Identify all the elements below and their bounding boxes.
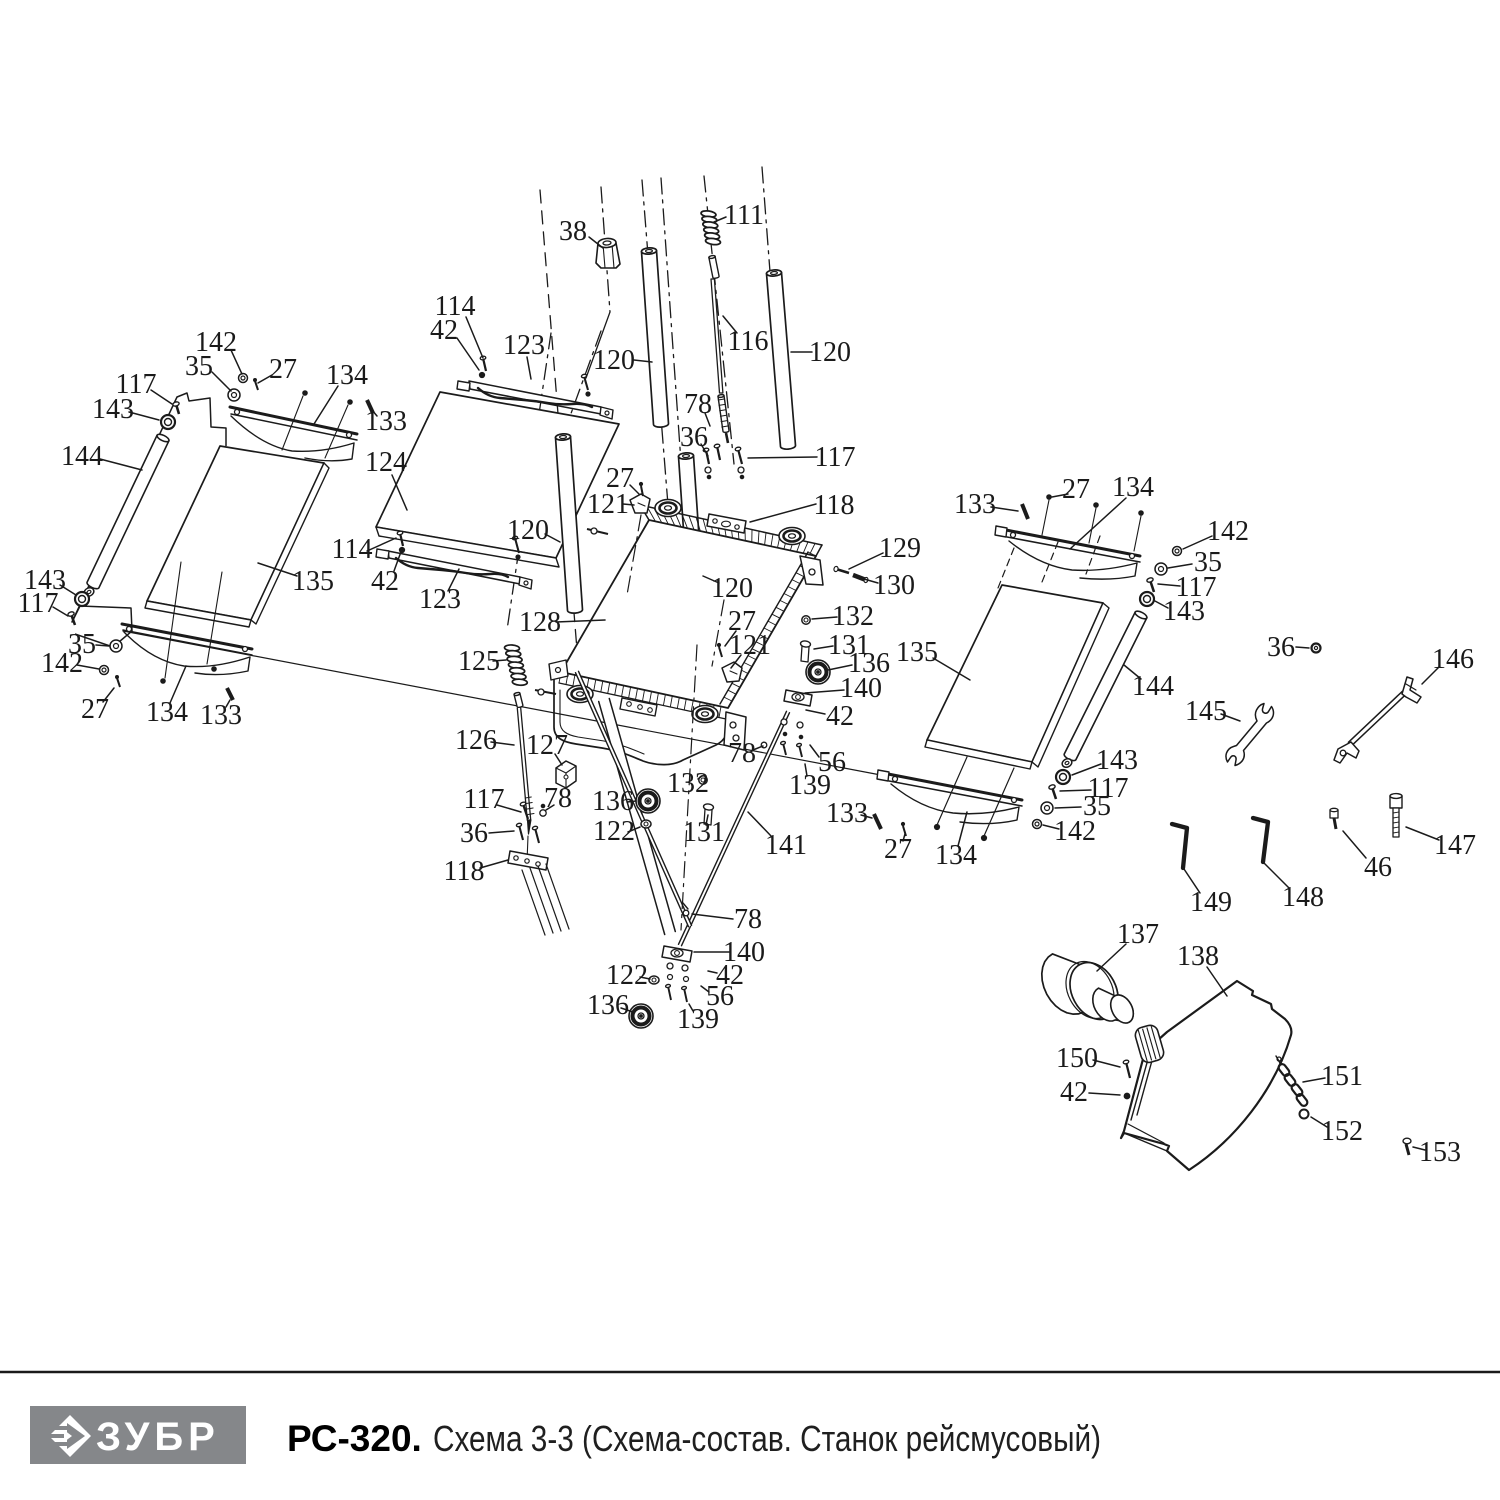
svg-text:122: 122	[606, 960, 648, 991]
svg-text:117: 117	[18, 588, 59, 619]
svg-text:129: 129	[879, 533, 921, 564]
svg-text:42: 42	[430, 315, 458, 346]
svg-text:130: 130	[873, 570, 915, 601]
svg-text:42: 42	[826, 701, 854, 732]
svg-text:151: 151	[1321, 1061, 1363, 1092]
svg-text:135: 135	[292, 566, 334, 597]
svg-text:147: 147	[1434, 830, 1476, 861]
svg-text:140: 140	[840, 673, 882, 704]
svg-text:133: 133	[365, 406, 407, 437]
svg-text:121: 121	[587, 489, 629, 520]
svg-text:78: 78	[684, 389, 712, 420]
svg-text:148: 148	[1282, 882, 1324, 913]
svg-text:133: 133	[200, 700, 242, 731]
svg-text:142: 142	[1207, 516, 1249, 547]
svg-text:117: 117	[815, 442, 856, 473]
svg-text:114: 114	[332, 534, 373, 565]
svg-text:145: 145	[1185, 696, 1227, 727]
svg-text:36: 36	[680, 422, 708, 453]
svg-text:135: 135	[896, 637, 938, 668]
svg-text:111: 111	[724, 200, 764, 231]
svg-text:144: 144	[1132, 671, 1174, 702]
svg-text:146: 146	[1432, 644, 1474, 675]
svg-text:122: 122	[593, 816, 635, 847]
svg-text:131: 131	[683, 817, 725, 848]
svg-text:134: 134	[326, 360, 368, 391]
svg-text:149: 149	[1190, 887, 1232, 918]
svg-text:46: 46	[1364, 852, 1392, 883]
svg-text:121: 121	[729, 630, 771, 661]
svg-text:143: 143	[1163, 596, 1205, 627]
svg-text:153: 153	[1419, 1137, 1461, 1168]
svg-text:118: 118	[444, 856, 485, 887]
svg-text:78: 78	[544, 783, 572, 814]
svg-text:134: 134	[935, 840, 977, 871]
svg-text:133: 133	[826, 798, 868, 829]
svg-text:РС-320.: РС-320.	[287, 1418, 422, 1459]
svg-text:133: 133	[954, 489, 996, 520]
svg-text:138: 138	[1177, 941, 1219, 972]
svg-text:27: 27	[884, 834, 912, 865]
svg-text:124: 124	[365, 447, 407, 478]
svg-text:116: 116	[728, 326, 769, 357]
svg-text:128: 128	[519, 607, 561, 638]
svg-text:35: 35	[185, 351, 213, 382]
svg-text:123: 123	[419, 584, 461, 615]
svg-text:78: 78	[728, 738, 756, 769]
svg-text:ЗУБР: ЗУБР	[96, 1415, 220, 1459]
svg-text:132: 132	[832, 601, 874, 632]
svg-text:144: 144	[61, 441, 103, 472]
svg-text:143: 143	[92, 394, 134, 425]
svg-text:120: 120	[809, 337, 851, 368]
svg-text:136: 136	[587, 990, 629, 1021]
svg-text:118: 118	[814, 490, 855, 521]
svg-text:38: 38	[559, 216, 587, 247]
svg-text:127: 127	[526, 730, 568, 761]
svg-text:143: 143	[1096, 745, 1138, 776]
svg-text:136: 136	[592, 786, 634, 817]
svg-text:125: 125	[458, 646, 500, 677]
svg-text:139: 139	[789, 770, 831, 801]
svg-text:Схема 3-3 (Схема-состав. Стано: Схема 3-3 (Схема-состав. Станок рейсмусо…	[433, 1418, 1101, 1459]
svg-text:117: 117	[464, 784, 505, 815]
svg-text:152: 152	[1321, 1116, 1363, 1147]
svg-text:141: 141	[765, 830, 807, 861]
svg-text:142: 142	[41, 648, 83, 679]
svg-text:120: 120	[593, 345, 635, 376]
svg-text:27: 27	[1062, 474, 1090, 505]
svg-text:42: 42	[371, 566, 399, 597]
svg-text:137: 137	[1117, 919, 1159, 950]
svg-text:134: 134	[1112, 472, 1154, 503]
svg-text:27: 27	[269, 354, 297, 385]
svg-text:134: 134	[146, 697, 188, 728]
svg-text:150: 150	[1056, 1043, 1098, 1074]
svg-text:36: 36	[460, 818, 488, 849]
svg-text:142: 142	[1054, 816, 1096, 847]
svg-text:132: 132	[667, 768, 709, 799]
svg-text:123: 123	[503, 330, 545, 361]
svg-text:139: 139	[677, 1004, 719, 1035]
svg-text:42: 42	[1060, 1077, 1088, 1108]
svg-text:126: 126	[455, 725, 497, 756]
svg-text:27: 27	[81, 694, 109, 725]
svg-text:120: 120	[507, 515, 549, 546]
svg-text:36: 36	[1267, 632, 1295, 663]
svg-text:120: 120	[711, 573, 753, 604]
svg-text:78: 78	[734, 904, 762, 935]
